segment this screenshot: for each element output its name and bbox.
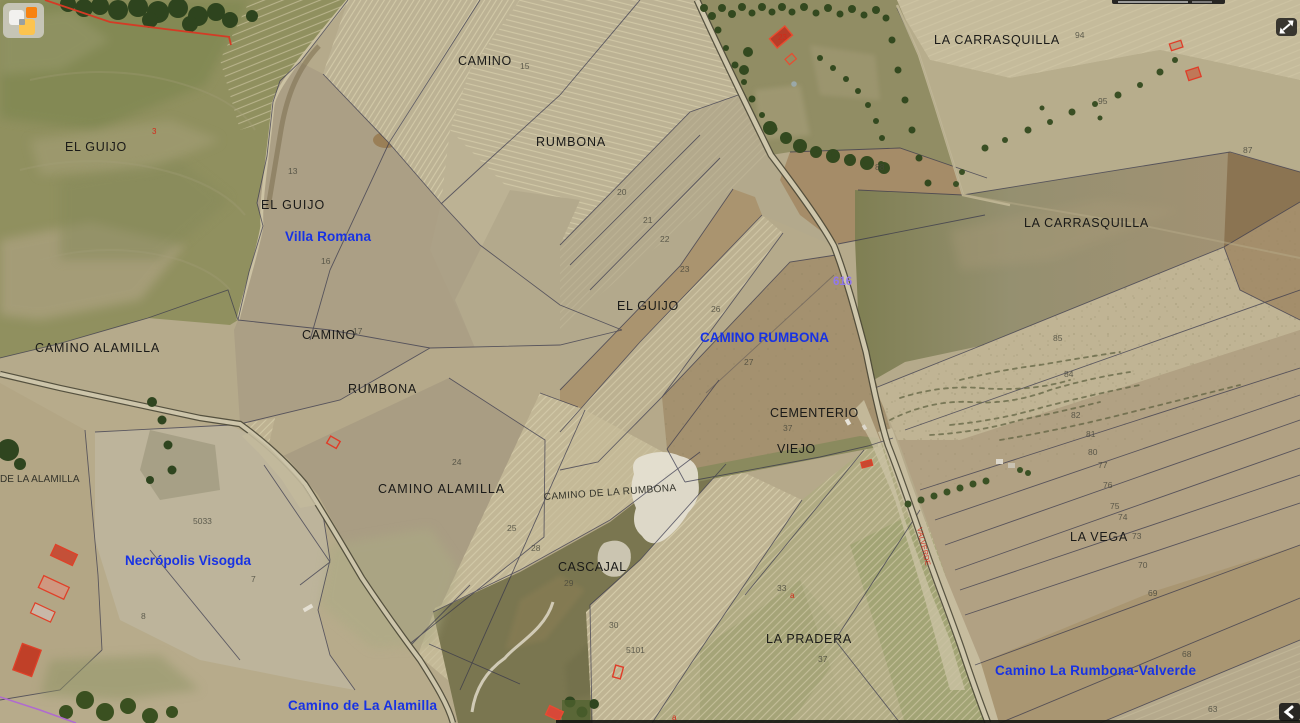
svg-text:30: 30 <box>609 620 619 630</box>
svg-text:23: 23 <box>680 264 690 274</box>
svg-text:88: 88 <box>875 162 885 172</box>
svg-text:15: 15 <box>520 61 530 71</box>
svg-text:23: 23 <box>778 33 787 42</box>
svg-text:28: 28 <box>531 543 541 553</box>
svg-text:CEMENTERIO: CEMENTERIO <box>770 406 859 420</box>
svg-text:21: 21 <box>643 215 653 225</box>
svg-text:DE LA ALAMILLA: DE LA ALAMILLA <box>0 474 80 485</box>
svg-text:RUMBONA: RUMBONA <box>536 135 606 149</box>
svg-text:616: 616 <box>833 276 852 288</box>
svg-text:Camino La Rumbona-Valverde: Camino La Rumbona-Valverde <box>995 663 1196 678</box>
svg-text:84: 84 <box>1064 369 1074 379</box>
svg-text:33: 33 <box>777 583 787 593</box>
svg-text:EL GUIJO: EL GUIJO <box>261 198 325 212</box>
svg-text:Camino de La Alamilla: Camino de La Alamilla <box>288 698 437 713</box>
svg-text:7: 7 <box>251 574 256 584</box>
svg-text:68: 68 <box>1182 649 1192 659</box>
svg-text:77: 77 <box>1098 460 1108 470</box>
svg-text:Necrópolis Visogda: Necrópolis Visogda <box>125 553 251 568</box>
svg-text:Villa Romana: Villa Romana <box>285 229 371 244</box>
svg-text:63: 63 <box>1208 704 1218 714</box>
svg-text:16: 16 <box>321 256 331 266</box>
svg-text:26: 26 <box>711 304 721 314</box>
svg-text:80: 80 <box>1088 447 1098 457</box>
svg-text:13: 13 <box>288 166 298 176</box>
svg-text:81: 81 <box>1086 429 1096 439</box>
svg-text:CAMINO ALAMILLA: CAMINO ALAMILLA <box>378 482 505 496</box>
svg-text:EL GUIJO: EL GUIJO <box>617 299 679 313</box>
svg-text:EL GUIJO: EL GUIJO <box>65 140 127 154</box>
svg-text:70: 70 <box>1138 560 1148 570</box>
svg-text:25: 25 <box>507 523 517 533</box>
svg-text:CAMINO RUMBONA: CAMINO RUMBONA <box>700 330 829 345</box>
svg-text:8: 8 <box>141 611 146 621</box>
svg-text:76: 76 <box>1103 480 1113 490</box>
svg-text:5033: 5033 <box>193 516 212 526</box>
svg-text:75: 75 <box>1110 501 1120 511</box>
svg-text:29: 29 <box>564 578 574 588</box>
svg-text:22: 22 <box>660 234 670 244</box>
svg-text:24: 24 <box>452 457 462 467</box>
svg-text:37: 37 <box>783 423 793 433</box>
svg-text:LA CARRASQUILLA: LA CARRASQUILLA <box>1024 216 1149 230</box>
svg-text:CAMINO ALAMILLA: CAMINO ALAMILLA <box>35 341 160 355</box>
svg-text:LA VEGA: LA VEGA <box>1070 530 1128 544</box>
svg-text:20: 20 <box>617 187 627 197</box>
svg-text:17: 17 <box>353 326 363 336</box>
svg-text:CASCAJAL: CASCAJAL <box>558 560 627 574</box>
svg-text:LA PRADERA: LA PRADERA <box>766 632 852 646</box>
svg-text:73: 73 <box>1132 531 1142 541</box>
svg-text:VIEJO: VIEJO <box>777 442 816 456</box>
svg-text:LA CARRASQUILLA: LA CARRASQUILLA <box>934 33 1060 47</box>
svg-text:CAMINO: CAMINO <box>302 328 356 342</box>
svg-text:3: 3 <box>152 127 157 136</box>
svg-text:74: 74 <box>1118 512 1128 522</box>
svg-text:87: 87 <box>1243 145 1253 155</box>
svg-text:94: 94 <box>1075 30 1085 40</box>
svg-text:37: 37 <box>818 654 828 664</box>
svg-text:27: 27 <box>744 357 754 367</box>
svg-text:85: 85 <box>1053 333 1063 343</box>
svg-text:CAMINO: CAMINO <box>458 54 512 68</box>
svg-text:82: 82 <box>1071 410 1081 420</box>
svg-text:5101: 5101 <box>626 645 645 655</box>
svg-text:69: 69 <box>1148 588 1158 598</box>
svg-text:95: 95 <box>1098 96 1108 106</box>
svg-text:RUMBONA: RUMBONA <box>348 382 417 396</box>
svg-text:a: a <box>790 591 795 600</box>
